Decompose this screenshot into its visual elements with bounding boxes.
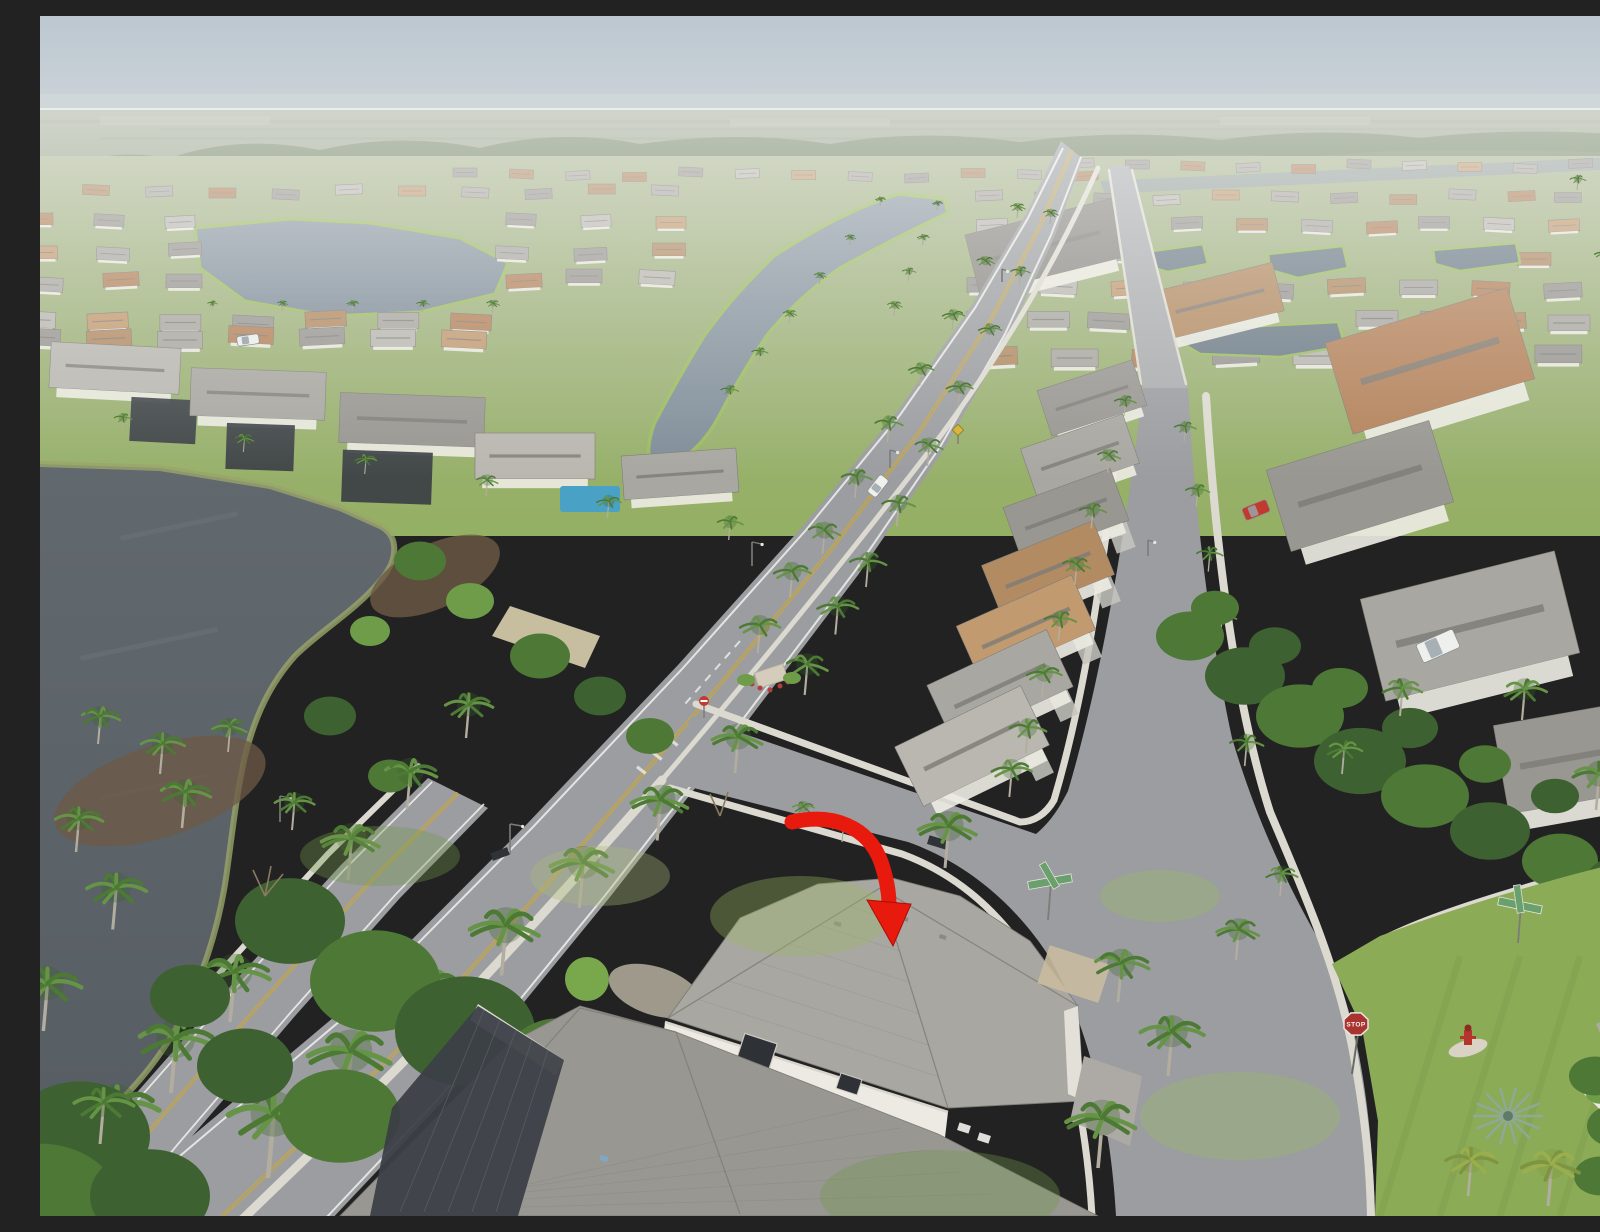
light-head — [760, 543, 763, 546]
ac-unit — [957, 1122, 971, 1133]
tree-canopy — [197, 1029, 293, 1104]
bismarck-center — [1503, 1111, 1513, 1121]
light-head — [896, 451, 899, 454]
hydrant-arms — [1460, 1036, 1476, 1039]
light-head — [521, 825, 524, 828]
hedge — [1450, 802, 1530, 860]
atmospheric-haze — [40, 108, 1600, 478]
sky-layer — [40, 16, 1600, 120]
round-bush — [565, 957, 609, 1001]
hedge — [1382, 708, 1438, 748]
light-head — [1153, 541, 1156, 544]
grass-patch — [1140, 1072, 1340, 1160]
shrub-cluster — [394, 542, 446, 581]
ac-unit — [977, 1132, 991, 1143]
light-arm — [752, 542, 762, 544]
tree-canopy — [150, 965, 230, 1027]
shrub-cluster — [350, 616, 390, 646]
hedge — [1459, 745, 1511, 782]
shrub-cluster — [510, 634, 570, 679]
flower-bed — [778, 684, 783, 689]
scene-canvas: STOP — [40, 16, 1600, 1216]
grass-patch — [530, 846, 670, 906]
shrub-cluster — [574, 677, 626, 716]
shrub-cluster — [626, 718, 674, 754]
monument-shrub — [737, 674, 755, 686]
shrub-cluster — [304, 697, 356, 736]
grass-patch — [1100, 870, 1220, 922]
car-glass — [241, 336, 249, 345]
hedge — [1312, 668, 1368, 708]
flower-bed — [768, 688, 773, 693]
palm-tree — [1505, 678, 1547, 720]
tree-canopy — [280, 1069, 400, 1163]
hedge — [1249, 627, 1301, 664]
light-arm — [510, 824, 522, 826]
do-not-enter-bar — [701, 700, 708, 702]
palm-tree — [445, 692, 492, 738]
monument-shrub — [783, 672, 801, 684]
stop-sign-label: STOP — [1346, 1022, 1365, 1029]
flower-bed — [758, 686, 763, 691]
shrub-cluster — [446, 583, 494, 619]
grass-patch — [710, 876, 890, 956]
hedge — [1531, 779, 1579, 814]
hydrant-cap — [1465, 1025, 1472, 1032]
house — [1360, 551, 1585, 722]
aerial-photo: STOP — [40, 16, 1600, 1216]
grass-patch — [300, 826, 460, 886]
hedge — [1191, 591, 1239, 626]
light-head — [1006, 270, 1009, 273]
